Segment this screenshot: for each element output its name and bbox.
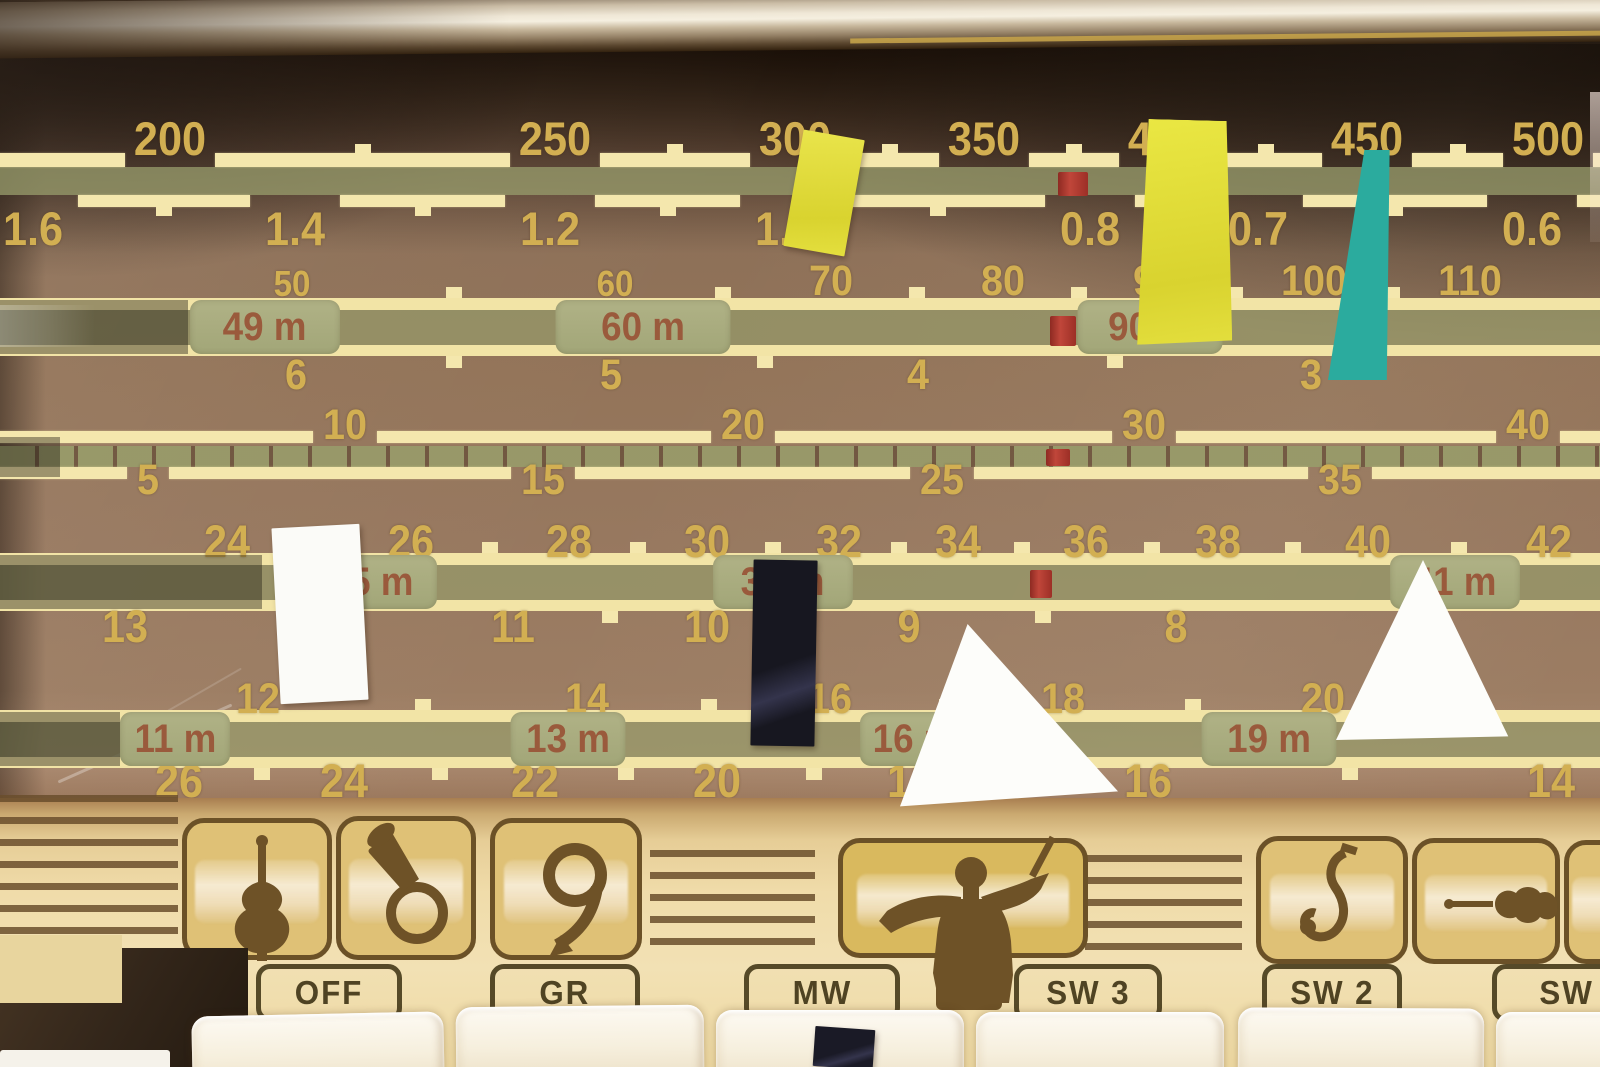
scale-number-sw-31m-band: 40 [1345,524,1391,561]
scale-tick [432,768,448,780]
band-badge: 19 m [1202,712,1337,766]
scale-line-segment [1412,153,1504,167]
scale-number-sw-13m-band: 16 [1124,762,1172,801]
scale-number-sw-13m-band: 22 [511,762,559,801]
scale-number-sw-90m-band: 80 [981,264,1025,299]
scale-number-logging-scale: 30 [1122,408,1166,443]
scale-number-logging-scale: 40 [1506,408,1550,443]
scale-number-logging-scale: 5 [137,463,159,498]
scale-tick [1451,542,1467,553]
tuning-pointer-red-mark [1030,570,1052,598]
scale-number-logging-scale: 35 [1318,463,1362,498]
scale-number-sw-90m-band: 110 [1438,264,1502,299]
bezel-shadow-left [0,0,510,58]
scale-line-segment [1372,467,1600,479]
scale-number-mw-meters: 200 [134,120,206,159]
scale-number-sw-13m-band: 24 [320,762,368,801]
scale-line-segment [600,153,751,167]
band-shine [0,305,95,347]
scale-number-mw-mhz: 0.8 [1060,210,1120,249]
scale-tick [806,768,822,780]
scale-number-sw-90m-band: 50 [274,269,311,299]
scale-tick [446,356,462,368]
scale-number-logging-scale: 20 [721,408,765,443]
scale-line-segment [595,195,741,207]
scale-tick [715,287,731,298]
scale-number-logging-scale: 10 [323,408,367,443]
piano-key [191,1011,445,1067]
scale-number-sw-31m-band: 9 [897,609,920,646]
scale-tick [254,768,270,780]
scale-number-sw-90m-band: 6 [285,358,307,393]
scale-number-mw-mhz: 1.4 [265,210,325,249]
double-bass-icon [187,823,327,955]
scale-tick [446,287,462,298]
scale-tick [355,144,371,153]
scale-number-sw-90m-band: 70 [809,264,853,299]
scale-tick [1107,356,1123,368]
band-button-label: OFF [295,974,363,1012]
radio-dial-photo: 2002503003504004505001.61.41.21.00.80.70… [0,0,1600,1067]
scale-tick [667,144,683,153]
tape-white-quad [271,524,368,704]
scale-number-mw-mhz: 1.2 [520,210,580,249]
scale-line-segment [974,467,1309,479]
scale-tick [1066,144,1082,153]
scale-tick [930,207,946,216]
scale-tick [482,542,498,553]
scale-tick [882,144,898,153]
band-badge: 49 m [190,300,340,354]
scale-tick [765,542,781,553]
band-badge: 11 m [120,712,230,766]
band-badge: 13 m [511,712,626,766]
glass-edge-reflection [1590,92,1600,242]
scale-tick [660,207,676,216]
scale-number-sw-90m-band: 5 [600,358,622,393]
tuba-icon [341,821,471,955]
scale-number-sw-13m-band: 12 [236,682,280,717]
scale-line-segment [377,431,712,443]
piano-key [1238,1007,1484,1067]
scale-number-sw-13m-band: 20 [693,762,741,801]
instrument-tile [336,816,476,960]
scale-number-sw-31m-band: 34 [935,524,981,561]
scale-number-sw-90m-band: 100 [1281,264,1347,299]
violin-icon [1417,843,1555,959]
scale-tick [1342,768,1358,780]
key-sliver-bottom-left [0,1050,170,1067]
scale-number-sw-90m-band: 4 [907,358,929,393]
scale-line-segment [0,153,125,167]
scale-tick [602,611,618,623]
scale-tick [1387,207,1403,216]
scale-number-sw-31m-band: 42 [1526,524,1572,561]
band-button-label: SW [1540,974,1594,1012]
scale-number-sw-13m-band: 14 [1527,762,1575,801]
scale-number-sw-31m-band: 36 [1063,524,1109,561]
scale-line-segment [830,195,1046,207]
panel-step-left [0,935,122,1003]
scale-number-logging-scale: 25 [920,463,964,498]
scale-number-sw-90m-band: 3 [1300,358,1322,393]
scale-tick [1035,611,1051,623]
scale-number-mw-meters: 500 [1512,120,1584,159]
piano-key [976,1012,1224,1067]
scale-tick [1285,542,1301,553]
scale-number-mw-mhz: 0.7 [1228,210,1288,249]
scale-tick [1144,542,1160,553]
saxophone-icon [1261,841,1403,959]
scale-number-sw-31m-band: 28 [546,524,592,561]
scale-tick [891,542,907,553]
scale-line-segment [575,467,911,479]
scale-number-sw-13m-band: 18 [1041,682,1085,717]
instrument-tile [838,838,1088,958]
conductor-icon [843,843,1083,953]
scale-tick [1185,699,1201,710]
band-badge-label: 13 m [526,717,610,762]
grille-stripes [1085,855,1242,950]
band-badge-label: 19 m [1227,717,1311,762]
scale-line-segment [1176,431,1497,443]
band-button-label: SW 2 [1290,974,1374,1012]
bezel-gold-trim [850,31,1600,44]
scale-line-segment [1029,153,1120,167]
tuning-pointer-red-mark [1046,449,1070,466]
scale-number-logging-scale: 15 [521,463,565,498]
scale-tick [156,207,172,216]
scale-number-sw-31m-band: 10 [684,609,730,646]
scale-line-segment [169,467,511,479]
scale-tick [1071,287,1087,298]
scale-number-mw-mhz: 0.6 [1502,210,1562,249]
grille-stripes [0,795,178,958]
piano-key [1496,1012,1600,1067]
scale-number-sw-31m-band: 8 [1164,609,1187,646]
scale-tick [1450,144,1466,153]
tuning-pointer-red-mark [1058,172,1088,196]
scale-number-mw-mhz: 1.6 [3,210,63,249]
scale-number-mw-meters: 350 [948,120,1020,159]
instrument-tile [1412,838,1560,964]
band-badge-label: 49 m [223,305,307,350]
scale-tick [618,768,634,780]
scale-number-sw-90m-band: 60 [597,269,634,299]
piano-key [456,1005,705,1067]
conductor-icon-body [936,952,1002,1010]
horn-icon [495,823,637,955]
scale-number-mw-meters: 250 [519,120,591,159]
tuning-pointer-red-mark [1050,316,1076,346]
scale-tick [757,356,773,368]
scale-tick [701,699,717,710]
blank-icon [1569,845,1600,959]
tape-yellow-large [1137,119,1238,347]
band-badge: 60 m [556,300,731,354]
scale-tick [630,542,646,553]
instrument-tile [490,818,642,960]
tape-navy-small [813,1026,876,1067]
scale-line-segment [1303,195,1488,207]
band-reflection [0,437,60,477]
scale-tick [1258,144,1274,153]
scale-line-segment [215,153,511,167]
grille-stripes [650,850,815,950]
scale-number-sw-31m-band: 11 [491,609,535,646]
scale-line-segment [1560,431,1600,443]
scale-tick [415,207,431,216]
instrument-tile [182,818,332,960]
scale-tick [909,287,925,298]
band-badge-label: 11 m [134,717,216,762]
band-button-label: SW 3 [1046,974,1130,1012]
band-button-label: MW [792,974,852,1012]
scale-line-segment [78,195,251,207]
scale-tick [415,699,431,710]
instrument-tile [1564,840,1600,964]
scale-number-sw-31m-band: 13 [102,609,148,646]
band-reflection [0,555,262,609]
scale-number-sw-31m-band: 38 [1195,524,1241,561]
scale-line-segment [340,195,506,207]
scale-line-segment [775,431,1113,443]
instrument-tile [1256,836,1408,964]
band-badge-label: 60 m [601,305,685,350]
tape-navy [750,559,817,746]
band-reflection [0,712,120,766]
scale-tick [1014,542,1030,553]
